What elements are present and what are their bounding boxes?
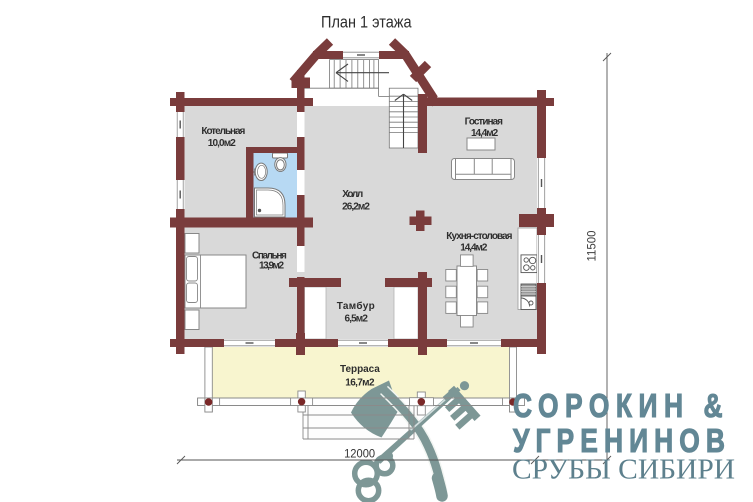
svg-text:14,4м2: 14,4м2 bbox=[471, 128, 499, 139]
svg-text:Гостиная: Гостиная bbox=[465, 117, 503, 128]
svg-text:10,0м2: 10,0м2 bbox=[208, 138, 236, 149]
svg-text:Тамбур: Тамбур bbox=[337, 300, 375, 312]
svg-text:Холл: Холл bbox=[342, 189, 363, 200]
svg-text:СРУБЫ СИБИРИ: СРУБЫ СИБИРИ bbox=[512, 454, 735, 486]
svg-text:Котельная: Котельная bbox=[201, 126, 245, 137]
svg-text:Кухня-столовая: Кухня-столовая bbox=[446, 231, 512, 242]
svg-text:16,7м2: 16,7м2 bbox=[345, 378, 375, 389]
svg-text:Терраса: Терраса bbox=[340, 364, 380, 375]
svg-text:14,4м2: 14,4м2 bbox=[460, 243, 488, 254]
svg-text:СОРОКИН &: СОРОКИН & bbox=[513, 388, 723, 424]
svg-text:12000: 12000 bbox=[344, 447, 375, 461]
svg-text:6,5м2: 6,5м2 bbox=[345, 314, 369, 325]
svg-text:План 1 этажа: План 1 этажа bbox=[321, 14, 412, 32]
svg-text:13,9м2: 13,9м2 bbox=[259, 261, 284, 272]
svg-text:26,2м2: 26,2м2 bbox=[342, 202, 370, 213]
svg-text:11500: 11500 bbox=[587, 231, 599, 262]
